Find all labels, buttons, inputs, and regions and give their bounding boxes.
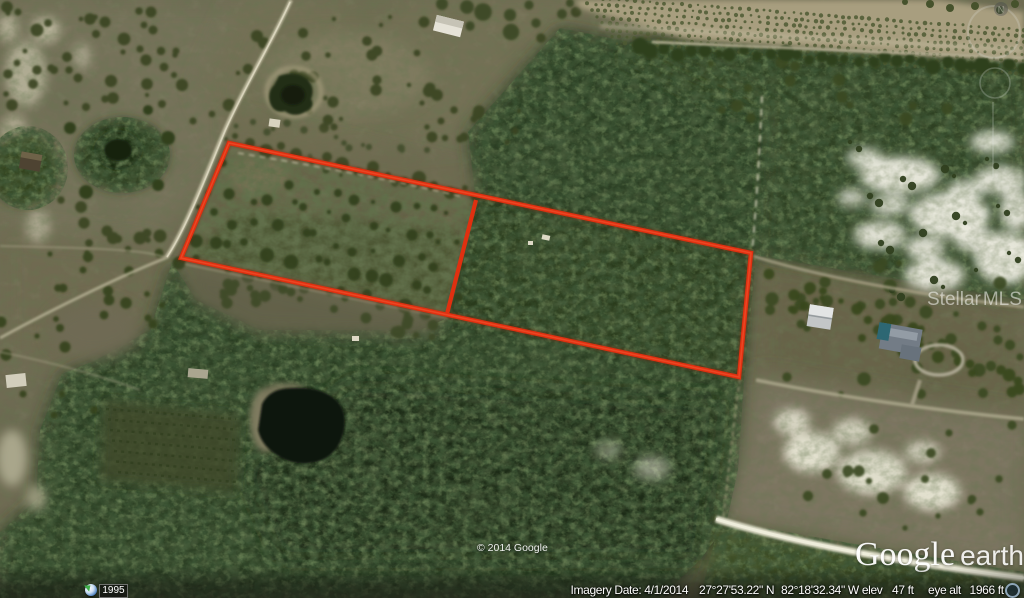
svg-text:N: N: [998, 5, 1005, 15]
